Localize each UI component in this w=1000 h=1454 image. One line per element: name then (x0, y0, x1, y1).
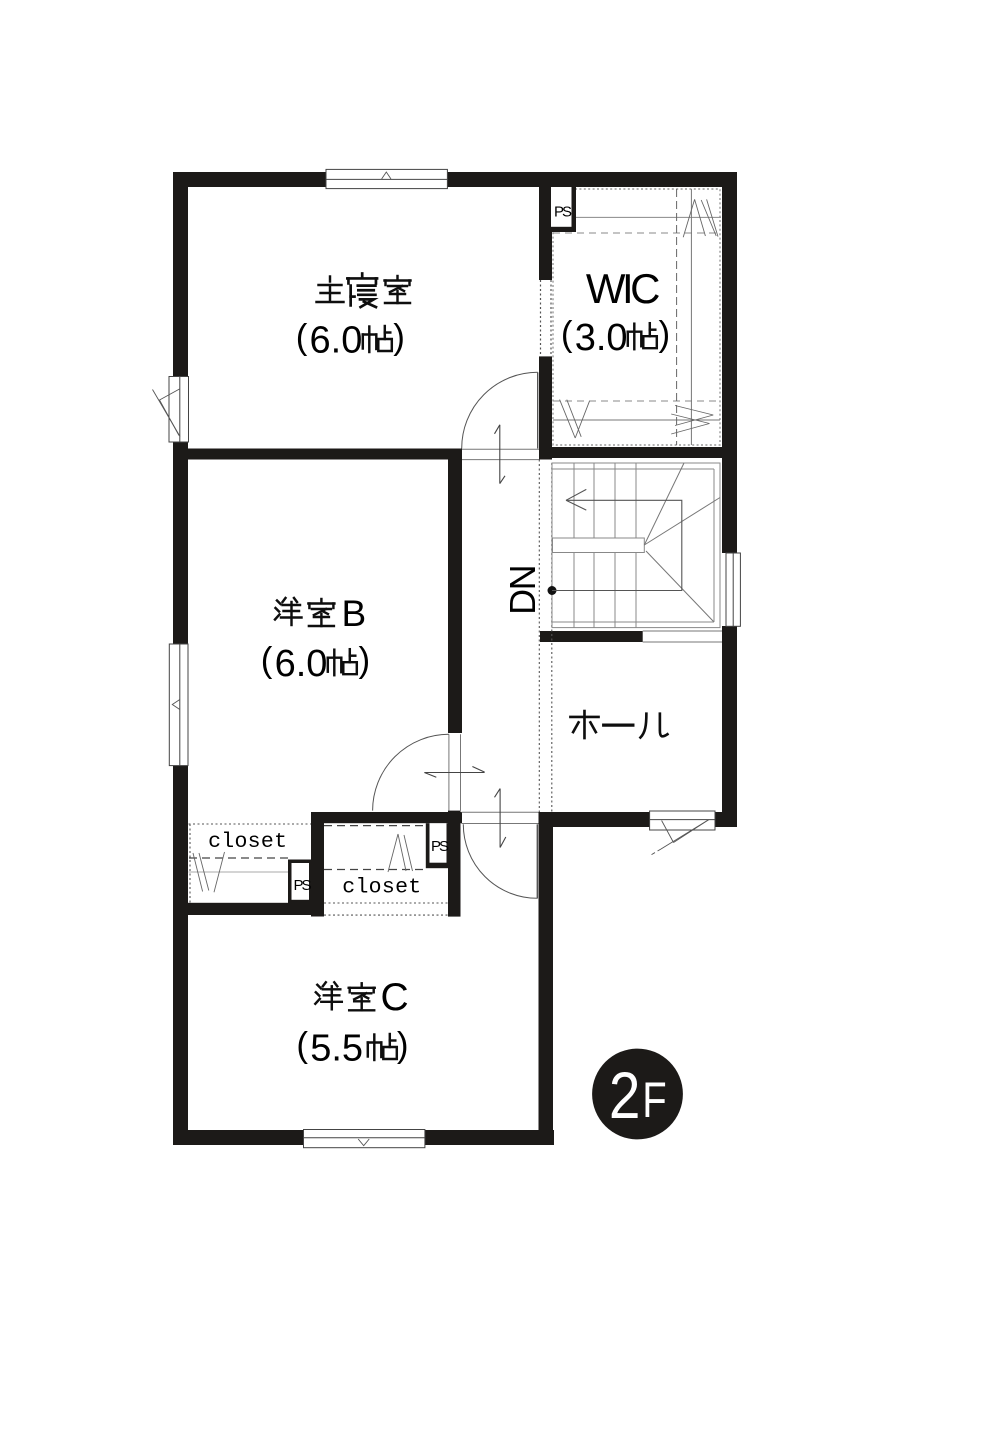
svg-text:(: ( (261, 641, 273, 680)
svg-text:PS: PS (293, 877, 311, 894)
svg-text:(: ( (296, 1025, 308, 1064)
svg-text:(: ( (296, 317, 308, 356)
svg-text:6.0: 6.0 (310, 320, 363, 362)
svg-text:F: F (642, 1072, 666, 1128)
svg-text:(: ( (561, 315, 573, 354)
svg-text:2: 2 (609, 1059, 641, 1133)
svg-text:WIC: WIC (586, 265, 659, 312)
svg-text:5.5: 5.5 (310, 1028, 363, 1070)
svg-text:DN: DN (502, 566, 543, 615)
svg-text:C: C (381, 976, 409, 1019)
svg-text:): ) (393, 317, 405, 356)
svg-text:): ) (359, 641, 371, 680)
svg-text:): ) (397, 1025, 409, 1064)
svg-text:3.0: 3.0 (575, 317, 628, 359)
svg-text:closet: closet (208, 830, 287, 854)
svg-text:B: B (342, 593, 367, 634)
svg-text:PS: PS (431, 838, 449, 855)
svg-text:6.0: 6.0 (275, 643, 328, 685)
svg-text:PS: PS (554, 203, 572, 220)
svg-text:): ) (659, 315, 671, 354)
svg-text:closet: closet (342, 876, 421, 900)
